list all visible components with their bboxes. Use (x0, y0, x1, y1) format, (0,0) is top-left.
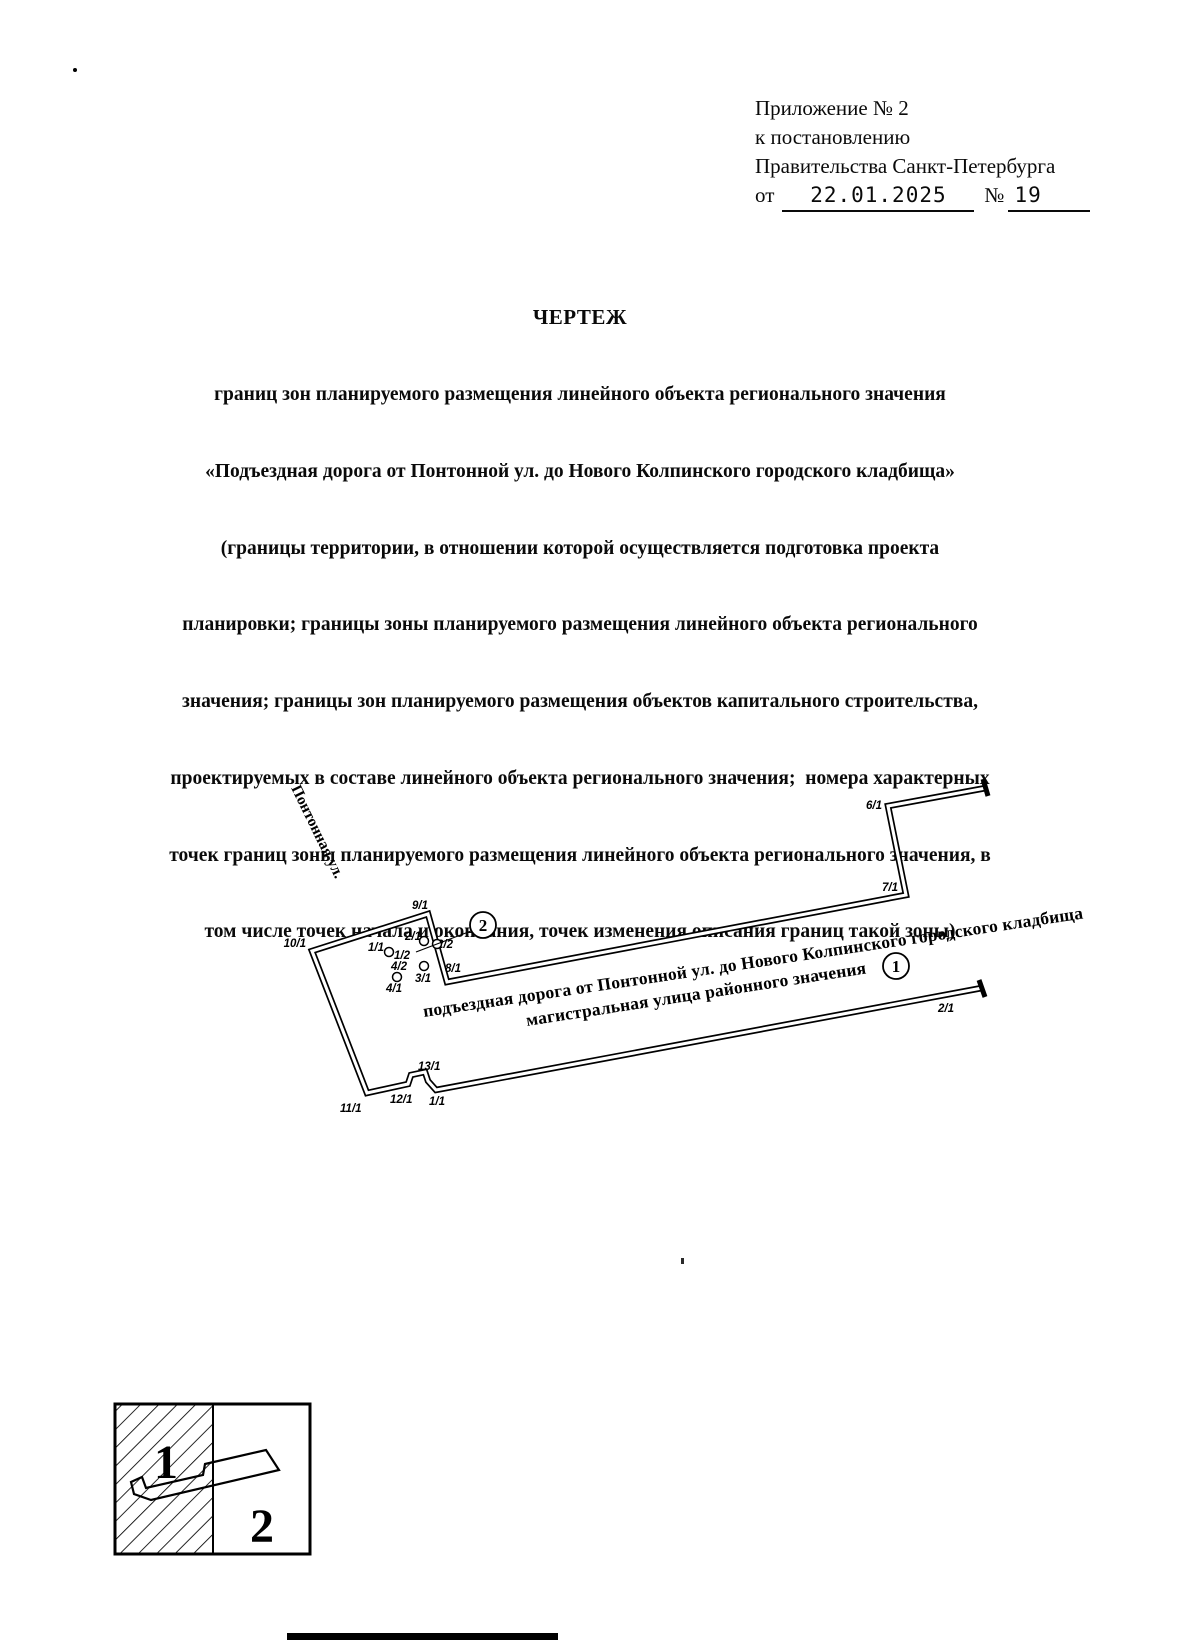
point-label-7-1: 7/1 (882, 882, 898, 894)
point-label-13-1: 13/1 (418, 1061, 440, 1073)
road-name-line1: подъездная дорога от Понтонной ул. до Но… (422, 903, 1085, 1021)
point-label-1-1b: 1/1 (429, 1096, 445, 1108)
point-marker-3-1 (420, 962, 429, 971)
scan-artifact-bar (287, 1633, 558, 1640)
scanned-document-page: Приложение № 2 к постановлению Правитель… (0, 0, 1200, 1642)
point-label-9-1: 9/1 (412, 900, 428, 912)
point-label-10-1: 10/1 (284, 938, 306, 950)
point-label-4-1: 4/1 (385, 983, 402, 995)
boundary-end-cap (983, 779, 988, 796)
point-marker-4-1 (393, 973, 402, 982)
point-label-1-1: 1/1 (368, 942, 384, 954)
point-label-12-1: 12/1 (390, 1094, 412, 1106)
street-label-pontonnaya: Понтонная ул. (287, 782, 347, 881)
point-label-8-1: 8/1 (445, 963, 461, 975)
point-label-6-1: 6/1 (866, 800, 882, 812)
point-label-2-1: 2/1 (404, 931, 421, 943)
point-label-3-1: 3/1 (415, 973, 431, 985)
point-marker-1-1 (385, 948, 394, 957)
legend: 1 2 (115, 1404, 310, 1554)
point-label-2-1b: 2/1 (937, 1003, 954, 1015)
callout-1-number: 1 (892, 957, 901, 976)
legend-item-2-number: 2 (250, 1500, 274, 1553)
point-label-11-1: 11/1 (340, 1103, 362, 1115)
point-label-4-2: 4/2 (390, 961, 408, 973)
callout-2-number: 2 (479, 916, 488, 935)
boundary-end-cap (979, 980, 985, 997)
plan-drawing: Понтонная ул. 2/2 9/1 10/1 2/1 1/1 1/2 4… (0, 0, 1200, 1642)
scan-artifact-dot (73, 68, 77, 72)
scan-artifact-dot (681, 1258, 684, 1264)
